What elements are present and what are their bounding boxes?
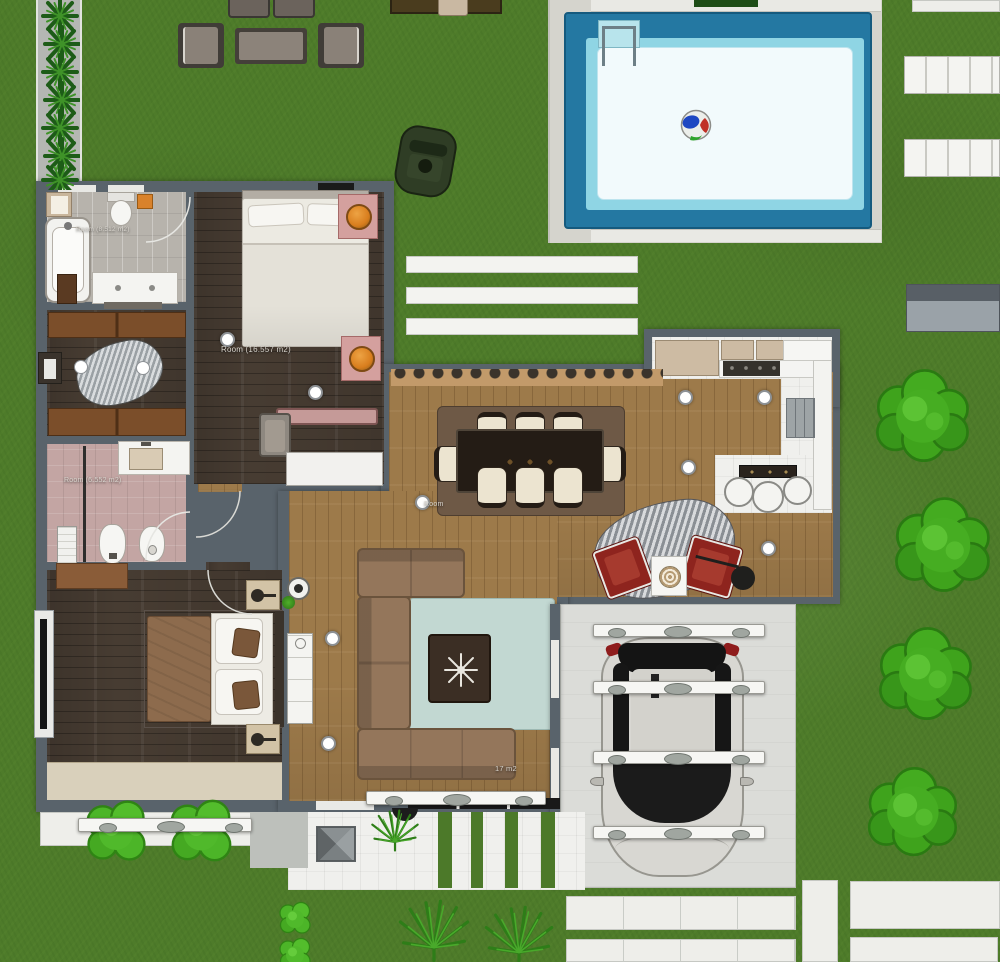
beam-connector [515,796,533,806]
accent-pillow [231,627,261,658]
beam-connector [732,755,750,765]
bar-stool[interactable] [783,476,812,505]
paver-slab[interactable] [850,937,998,962]
bush[interactable] [276,900,314,936]
window-frame [34,610,54,738]
toilet[interactable] [110,200,132,226]
dresser[interactable] [286,452,383,486]
room-label: 17 m2 [495,764,517,773]
beam-connector [608,685,626,695]
wardrobe[interactable] [48,408,186,436]
tub-faucet [64,222,72,230]
tree[interactable] [884,494,1000,596]
sun-lounger[interactable] [904,56,1000,94]
kitchen-counter-right[interactable] [813,360,832,510]
paver-slab[interactable] [802,880,838,962]
bedroom-bench[interactable] [276,408,378,425]
beam-connector [664,753,692,765]
side-glass [715,663,731,757]
grass-strip [541,812,555,888]
lounge-sofa[interactable] [273,0,315,18]
lounge-armchair[interactable] [178,23,224,68]
armchair[interactable] [259,413,291,457]
tree[interactable] [866,624,984,724]
stool[interactable] [74,360,88,374]
double-sink-vanity[interactable] [92,272,178,304]
kitchen-cabinet[interactable] [721,340,754,360]
faucet [115,285,121,291]
bush[interactable] [276,936,314,962]
room-label: Room [424,501,443,508]
vanity-base [104,302,162,309]
pergola-beam[interactable] [593,624,765,637]
bookcase[interactable] [287,633,313,724]
beam-connector [732,685,750,695]
spiral-decor [659,566,681,588]
beam-connector [732,628,750,638]
dining-chair[interactable] [515,467,545,508]
pouf[interactable] [349,346,375,372]
hedge [694,0,758,7]
beam-connector [608,628,626,638]
door-arc[interactable] [196,491,240,537]
bar-stool[interactable] [724,477,754,507]
pouf[interactable] [346,204,372,230]
door-arc[interactable] [146,197,190,242]
pergola-beam[interactable] [593,751,765,764]
beam-connector [664,626,692,638]
decor-emblem [295,638,306,649]
dining-chair[interactable] [477,467,507,508]
bar-counter-top[interactable] [739,465,797,478]
beam-connector [443,794,471,806]
potted-plant[interactable] [282,596,295,609]
sofa-section[interactable] [357,596,411,730]
pergola-beam[interactable] [593,681,765,694]
entry-beam[interactable] [366,791,546,805]
lounge-armchair[interactable] [318,23,364,68]
grass-strip [438,812,452,888]
beam-connector [608,755,626,765]
beam-connector [385,796,403,806]
sofa-section[interactable] [357,548,465,598]
palm[interactable] [394,898,474,962]
stool[interactable] [136,361,150,375]
grass-strip [471,812,483,888]
room-label: Room (8.512 m2) [76,226,130,233]
beam-connector [225,823,243,833]
curtain-valance [391,369,663,386]
faucet [141,442,151,446]
toilet[interactable] [99,524,126,564]
shower-screen [83,446,86,562]
pool-ladder-rail [633,26,636,66]
beam-connector [99,823,117,833]
lounge-sofa[interactable] [228,0,270,18]
cooktop[interactable] [723,361,780,376]
side-mirror [740,777,754,786]
basin [129,448,163,470]
path-connector [250,812,308,868]
blanket [147,616,211,722]
door-arc[interactable] [146,512,190,560]
double-bed[interactable] [144,610,283,728]
walkway[interactable] [566,939,796,962]
deck-plank[interactable] [406,256,638,273]
beach-ball[interactable] [680,109,712,141]
bath-shelf[interactable] [46,192,72,217]
paver-slab [912,0,1000,12]
pergola-beam[interactable] [593,826,765,839]
bedside-mat [338,194,378,239]
tree[interactable] [866,366,978,466]
door-arc[interactable] [208,570,252,614]
beam-connector [732,830,750,840]
entry-plant[interactable] [368,802,422,858]
pool-water [597,47,853,200]
side-glass [613,663,629,757]
garden-bench[interactable] [906,284,1000,332]
room-label: Room (16.557 m2) [221,345,291,354]
coffee-table[interactable] [428,634,491,703]
dining-chair[interactable] [553,467,583,508]
pool-ladder[interactable] [602,26,636,29]
bar-stool[interactable] [752,481,784,513]
ceiling-light [325,631,340,646]
window-glass [40,619,47,729]
coffee-table[interactable] [235,28,307,64]
ceiling-light [757,390,772,405]
garage-wall-window [551,748,559,803]
bedroom-rug[interactable] [47,762,282,800]
tree[interactable] [856,764,968,860]
console-table[interactable] [38,352,62,384]
room-label: Room (6.552 m2) [64,477,121,484]
beam-connector [664,683,692,695]
kitchen-counter[interactable] [783,340,832,361]
sink-counter[interactable] [118,441,190,475]
deck-plank[interactable] [406,287,638,304]
wardrobe[interactable] [48,312,186,338]
sun-lounger[interactable] [904,139,1000,177]
bed-headboard [275,611,284,727]
grass-strip [505,812,518,888]
agave-hedge[interactable] [40,0,80,190]
ceiling-light [761,541,776,556]
starburst-decor [443,652,479,688]
picnic-bench [438,0,468,16]
pool-deck-slab [591,229,881,242]
pool-ladder-rail [602,26,605,66]
sofa-section[interactable] [357,728,516,780]
arc-floor-lamp[interactable] [731,566,755,590]
window [108,185,144,192]
floor-plan-canvas: Room (16.557 m2) Room (8.512 m2) Room (6… [0,0,1000,962]
side-table[interactable] [651,556,687,596]
beam-connector [608,830,626,840]
kitchen-cabinet[interactable] [655,340,719,376]
walkway[interactable] [566,896,796,930]
accent-pillow [232,680,261,711]
beam-connector [664,828,692,840]
bedside-mat [341,336,381,381]
side-mirror [590,777,604,786]
pyramid-skylight[interactable] [316,826,356,862]
duvet [243,243,368,346]
ceiling-light [681,460,696,475]
desk[interactable] [56,563,128,589]
bath-cabinet[interactable] [57,274,77,304]
garage-wall-window [551,640,559,698]
paver-slab[interactable] [850,881,1000,929]
pillow [247,203,304,228]
beam-connector [157,821,185,833]
ceiling-light [308,385,323,400]
ceiling-light [321,736,336,751]
ceiling-light [678,390,693,405]
patio-beam[interactable] [78,818,252,832]
deck-plank[interactable] [406,318,638,335]
palm[interactable] [480,904,558,962]
appliance[interactable] [786,398,815,438]
faucet [149,285,155,291]
nightstand[interactable] [246,724,280,754]
